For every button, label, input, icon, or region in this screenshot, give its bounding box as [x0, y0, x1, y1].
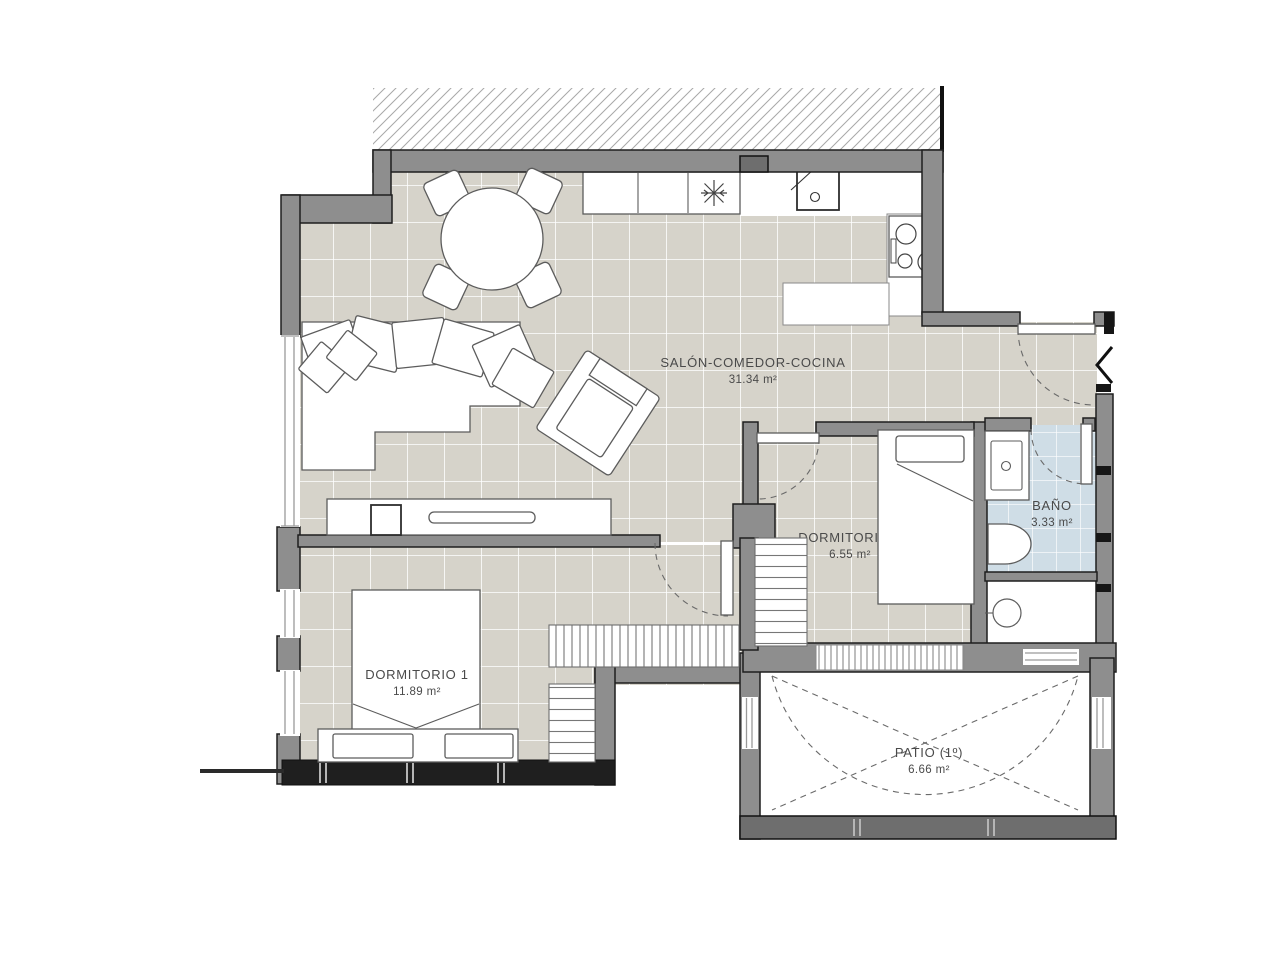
hatch-end-bar	[940, 86, 944, 152]
water-heater-icon	[993, 599, 1021, 627]
dining-set	[421, 167, 564, 312]
wall-salon-dorm1-divider	[298, 535, 660, 547]
window-balcony-left	[280, 335, 300, 527]
wall-mark-entry	[1104, 312, 1114, 334]
tv-unit	[327, 499, 611, 535]
window-patio-right	[1092, 697, 1111, 749]
floor-plan-page: DORMITORIO 2 6.55 m²	[0, 0, 1280, 960]
toilet-icon	[988, 524, 1031, 564]
window-dorm2-radiator	[816, 645, 964, 670]
dormitorio1-label: DORMITORIO 1	[365, 667, 469, 682]
pillow	[333, 734, 413, 758]
closet-side	[549, 684, 595, 762]
bano-label: BAÑO	[1032, 498, 1072, 513]
salon-label: SALÓN-COMEDOR-COCINA	[660, 355, 845, 370]
wall-right-top	[922, 150, 943, 314]
window-dorm1-left-2	[280, 670, 300, 736]
wall-mark-2	[1096, 466, 1111, 475]
salon-area: 31.34 m²	[729, 374, 778, 386]
wall-top	[373, 150, 943, 172]
window-dorm1-left-1	[280, 589, 300, 638]
kitchen-counter-peninsula	[783, 283, 889, 325]
exterior-mask-topright	[943, 150, 1097, 314]
wall-tab-top	[740, 156, 768, 172]
sink-icon	[701, 180, 727, 206]
wall-mark-3	[1096, 533, 1111, 542]
door-leaf	[757, 433, 819, 443]
ground-line	[200, 769, 284, 773]
floor-plan-drawing: DORMITORIO 2 6.55 m²	[0, 0, 1280, 960]
wall-dorm2-left	[743, 422, 758, 512]
speaker-icon	[371, 505, 401, 535]
exterior-mask-step	[615, 685, 742, 790]
pillow	[445, 734, 513, 758]
window-patio-top	[1023, 649, 1079, 665]
tv-icon	[429, 512, 535, 523]
patio-label: PATIO (1º)	[895, 745, 963, 760]
door-leaf	[721, 541, 733, 615]
window-patio-left	[742, 697, 758, 749]
bano-area: 3.33 m²	[1031, 517, 1073, 529]
kitchen-floor-strip	[740, 172, 942, 216]
wall-mark-4	[1096, 584, 1111, 592]
door-leaf	[1018, 324, 1095, 334]
patio-floor	[757, 655, 1102, 830]
dormitorio2-area: 6.55 m²	[829, 549, 871, 561]
wall-bath-top-a	[985, 418, 1031, 431]
entry-arrow-icon	[1097, 347, 1112, 383]
wall-dorm1-bottom	[282, 760, 615, 785]
closet-wide	[549, 625, 739, 667]
pillow	[896, 436, 964, 462]
wall-mark-1	[1096, 384, 1111, 392]
wall-bath-niche-divider	[985, 572, 1097, 581]
wall-hall-top-a	[922, 312, 1020, 326]
closet-shelves	[755, 538, 807, 646]
hatch-band	[373, 88, 943, 150]
patio-area: 6.66 m²	[908, 764, 950, 776]
door-leaf	[1081, 424, 1092, 484]
dormitorio1-area: 11.89 m²	[393, 686, 441, 698]
wall-left-upper	[281, 195, 300, 337]
wall-right-outer	[1096, 394, 1113, 662]
dining-table	[441, 188, 543, 290]
wall-patio-bottom	[740, 816, 1116, 839]
wall-left-mid	[277, 527, 300, 591]
party-wall-hatch	[373, 86, 944, 152]
wall-left-lower	[277, 636, 300, 671]
